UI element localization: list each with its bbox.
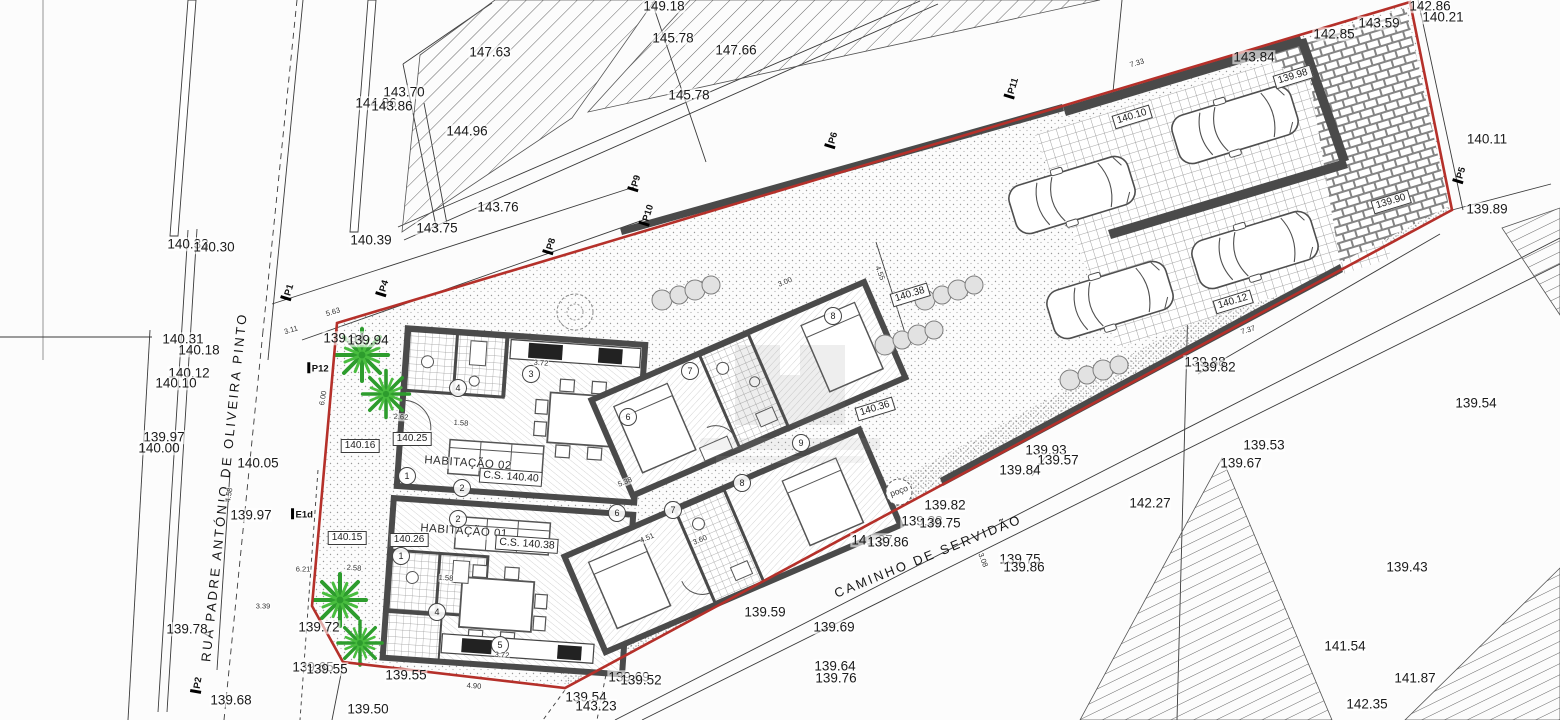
toilet	[452, 560, 469, 583]
stove	[598, 348, 623, 365]
stove	[557, 645, 582, 661]
site-plan-page: HABITAÇÃO 02 C.S. 140.40 HABITAÇÃO 01 C.…	[0, 0, 1560, 720]
tree-icon	[336, 329, 388, 381]
tree-icon	[314, 574, 366, 626]
sofa	[454, 516, 550, 554]
well-circle	[886, 479, 912, 505]
tree-icon	[338, 621, 382, 665]
kitchen-sink	[461, 638, 492, 654]
sofa	[448, 440, 544, 480]
tree-icon	[363, 371, 410, 418]
kitchen-sink	[528, 343, 563, 360]
toilet	[469, 341, 487, 366]
dining-table	[459, 577, 534, 632]
site-plan-drawing	[0, 0, 1560, 720]
sink	[406, 571, 419, 584]
sink	[421, 355, 434, 368]
